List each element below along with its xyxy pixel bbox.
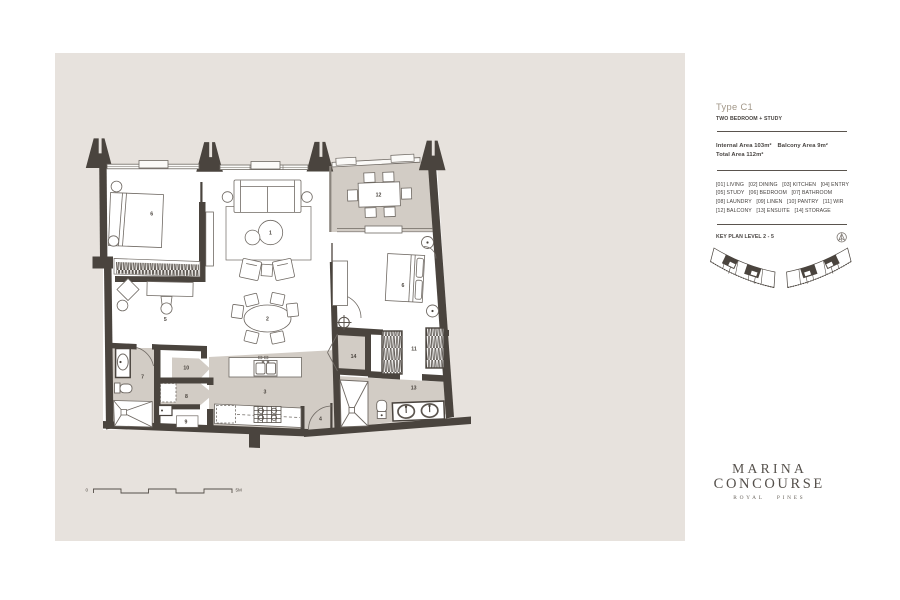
- svg-text:4: 4: [319, 417, 322, 423]
- svg-text:5M: 5M: [236, 488, 243, 493]
- svg-text:13: 13: [411, 386, 417, 392]
- svg-text:1: 1: [269, 231, 272, 237]
- svg-text:12: 12: [376, 193, 382, 199]
- svg-text:6: 6: [150, 212, 153, 218]
- svg-text:7: 7: [141, 375, 144, 381]
- svg-text:2: 2: [266, 317, 269, 323]
- svg-text:14: 14: [351, 354, 357, 360]
- svg-text:0: 0: [86, 488, 89, 493]
- svg-text:10: 10: [183, 366, 189, 372]
- svg-text:8: 8: [185, 394, 188, 400]
- svg-text:5: 5: [164, 317, 167, 323]
- svg-text:3: 3: [264, 390, 267, 396]
- svg-text:11: 11: [411, 347, 417, 353]
- svg-text:9: 9: [185, 420, 188, 426]
- svg-text:6: 6: [402, 283, 405, 289]
